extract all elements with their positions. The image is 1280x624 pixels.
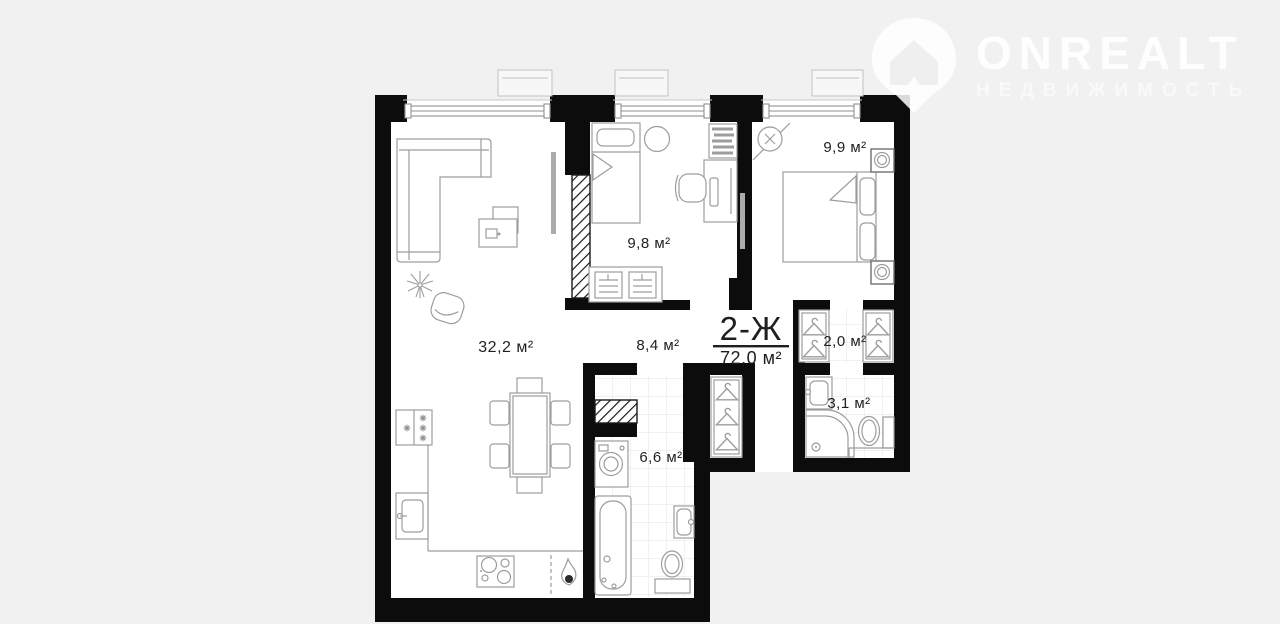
desk-chair-icon (676, 174, 707, 202)
bathtub-icon (595, 496, 631, 595)
cooktop-icon (477, 556, 514, 587)
single-bed-icon (592, 123, 640, 223)
room-label-living: 32,2 м² (478, 339, 534, 356)
floor-plan: 2-Ж 72,0 м² 32,2 м² 9,8 м² 9,9 м² 8,4 м²… (0, 0, 1280, 624)
pouf-icon (645, 127, 670, 152)
room-label-master-bedroom: 9,9 м² (823, 139, 866, 156)
fridge-icon (396, 410, 432, 445)
nightstand-icon (871, 149, 894, 172)
vent-duct-icon (595, 400, 637, 423)
tv-icon (551, 152, 556, 234)
room-label-hallway: 8,4 м² (636, 337, 679, 354)
room-label-bedroom: 9,8 м² (627, 235, 670, 252)
floor-plan-page: 2-Ж 72,0 м² 32,2 м² 9,8 м² 9,9 м² 8,4 м²… (0, 0, 1280, 624)
room-label-master-bathroom: 3,1 м² (827, 395, 870, 412)
desk-icon (704, 160, 737, 222)
closet-wardrobe-icon (863, 310, 893, 362)
vent-duct-icon (572, 175, 590, 298)
nightstand-icon (871, 261, 894, 284)
room-label-bathroom: 6,6 м² (639, 449, 682, 466)
unit-title: 2-Ж (720, 310, 783, 347)
double-bed-icon (783, 172, 876, 262)
kitchen-sink-icon (396, 493, 428, 539)
hallway-wardrobe-icon (711, 377, 742, 457)
room-label-closet: 2,0 м² (823, 333, 866, 350)
washing-machine-icon (595, 441, 628, 487)
wardrobe-icon (589, 267, 662, 302)
tv-icon (740, 193, 745, 249)
windows (403, 70, 863, 118)
facade-box-icon (498, 70, 863, 96)
sink-icon (674, 506, 694, 538)
bookshelf-icon (709, 124, 737, 158)
unit-total-area: 72,0 м² (720, 348, 782, 368)
